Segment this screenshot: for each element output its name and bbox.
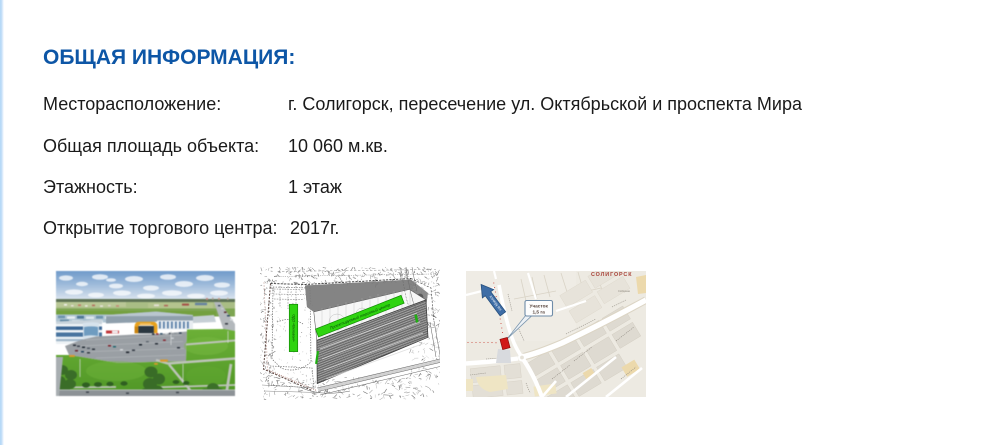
svg-text:Соборная: Соборная (618, 289, 631, 293)
svg-text:ОДО «Вилаван»: ОДО «Вилаван» (292, 314, 296, 341)
svg-text:СОЛИГОРСК: СОЛИГОРСК (591, 272, 632, 278)
svg-text:Участок: Участок (530, 303, 549, 308)
svg-text:1,5 га: 1,5 га (533, 309, 546, 314)
